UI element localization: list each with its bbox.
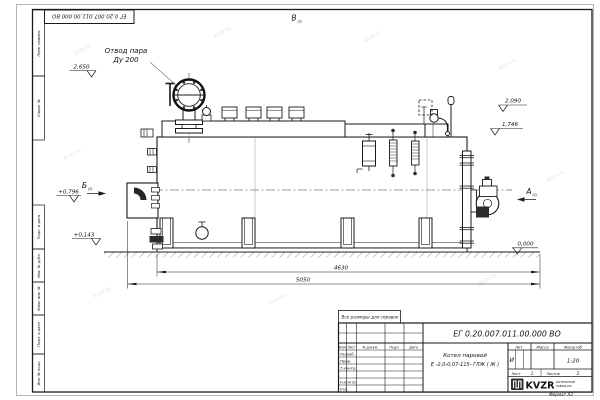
callout-line1: Отвод пара <box>105 47 148 55</box>
drawing-canvas: kvzr.ru kvzr.ru kvzr.ru kvzr.ru kvzr.ru … <box>0 0 600 400</box>
reference-note: Все размеры для справок <box>342 315 399 320</box>
blower-fan-icon <box>471 177 499 218</box>
sheet-label: Лист <box>510 372 521 376</box>
view-label-left: Б (2) <box>82 181 106 196</box>
logo-text: KVZR <box>526 381 556 392</box>
logo-sub2: ЗАВОД РФ <box>556 384 572 388</box>
boiler-drawing <box>104 73 540 258</box>
elevation-mark: +0,143 <box>72 233 101 246</box>
margin-cell-label: Справ. № <box>37 99 41 117</box>
elevation-value: +0,796 <box>58 190 79 196</box>
margin-cell-label: Взам. инв. № <box>37 286 41 311</box>
title-block: Все размеры для справок ЕГ 0.20.007.011.… <box>339 311 593 393</box>
lit-label: Лит. <box>514 345 524 350</box>
row-razrab: Разраб. <box>340 352 355 357</box>
elevation-mark: +0,796 <box>57 190 82 203</box>
burner-icon <box>127 183 160 218</box>
margin-cell-label: Подп. и дата <box>37 215 41 239</box>
manhole-hatches <box>222 107 304 121</box>
product-model: Е -2,0-0,07-115- ГЛЖ ( Ж ) <box>431 362 499 368</box>
product-name: Котел паровой <box>443 353 487 359</box>
scale-value: 1:20 <box>567 359 580 365</box>
sheets-value: 2 <box>577 371 580 376</box>
dimension-value: 5050 <box>296 278 311 284</box>
mass-label: Масса <box>536 345 549 350</box>
row-utv: Утв. <box>340 387 348 392</box>
elevation-mark: 2,650 <box>70 65 97 78</box>
elevation-value: +0,143 <box>74 233 95 239</box>
margin-cell-label: Перв. примен. <box>37 30 41 57</box>
row-prov: Пров. <box>340 359 351 364</box>
row-tkontr: Т.контр. <box>340 366 356 371</box>
view-letter: Б <box>82 181 87 190</box>
ground-line <box>104 252 540 258</box>
margin-cell-label: Подп. и дата <box>37 322 41 346</box>
elevation-value: 2,650 <box>73 65 89 71</box>
lit-value: И <box>510 357 515 364</box>
watermark-text: kvzr.ru <box>73 43 93 57</box>
margin-cell-label: Инв. № дубл. <box>37 253 41 278</box>
elevation-mark: 2,090 <box>499 99 528 112</box>
watermark-text: kvzr.ru <box>498 58 518 72</box>
col-sign: Подп. <box>389 346 399 350</box>
elevation-value: 2,090 <box>505 99 521 105</box>
top-stamp-number: ЕГ 0.20.007.011.00.000 ВО <box>51 12 126 18</box>
col-izm: Изм <box>339 346 346 350</box>
sheet-value: 1 <box>531 371 534 376</box>
sheets-label: Листов <box>545 372 559 376</box>
elevation-value: 1,746 <box>502 122 518 128</box>
watermark-text: kvzr.ru <box>63 148 83 162</box>
view-letter: А <box>525 187 531 196</box>
view-label-right: А (2) <box>517 187 537 202</box>
scale-label: Масштаб <box>564 345 583 350</box>
watermark-text: kvzr.ru <box>93 286 113 300</box>
watermark-text: kvzr.ru <box>213 26 233 40</box>
col-list: Лист <box>346 346 357 350</box>
view-label-top: В (2) <box>291 14 302 24</box>
watermark-text: kvzr.ru <box>268 293 288 307</box>
dimension-value: 4630 <box>334 266 349 272</box>
col-doc: N докум. <box>363 346 379 350</box>
view-ref: (2) <box>298 20 303 24</box>
format-label: Формат А3 <box>549 392 573 397</box>
view-ref: (2) <box>88 187 93 191</box>
left-margin-column: Перв. примен. Справ. № Подп. и дата Инв.… <box>33 10 45 392</box>
steam-outlet-callout: Отвод пара Ду 200 <box>105 47 177 86</box>
watermark-text: kvzr.ru <box>363 30 383 44</box>
elevation-mark: 1,746 <box>491 122 524 135</box>
elevation-value: 0,000 <box>517 242 533 248</box>
top-stamp: ЕГ 0.20.007.011.00.000 ВО <box>45 10 135 24</box>
col-date: Дата <box>408 346 418 350</box>
safety-valve-icon <box>202 105 211 121</box>
row-nkontr: Н.контр. <box>340 380 357 385</box>
callout-line2: Ду 200 <box>112 56 139 64</box>
drawing-sheet: kvzr.ru kvzr.ru kvzr.ru kvzr.ru kvzr.ru … <box>0 0 600 400</box>
boiler-body <box>138 121 512 252</box>
margin-cell-label: Инв. № подл. <box>37 361 41 386</box>
watermark-text: kvzr.ru <box>546 170 566 184</box>
watermark-text: kvzr.ru <box>478 273 498 287</box>
doc-number: ЕГ 0.20.007.011.00.000 ВО <box>453 330 561 339</box>
view-letter: В <box>291 14 296 23</box>
view-ref: (2) <box>533 193 538 197</box>
